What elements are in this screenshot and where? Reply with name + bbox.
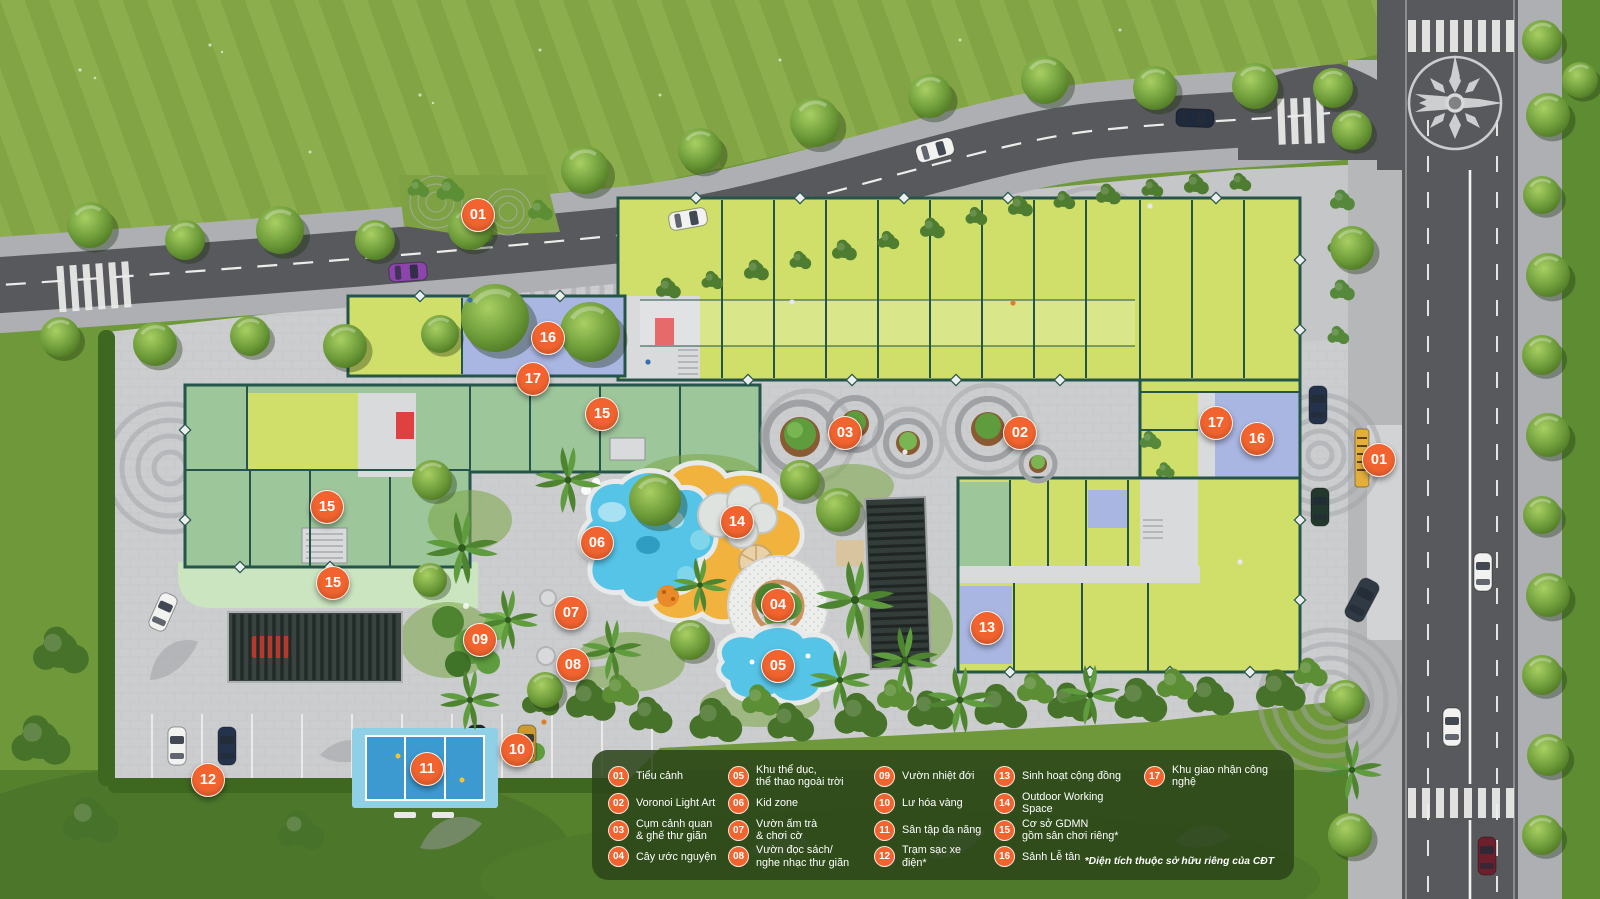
legend-item-11: 11Sân tập đa năng [874, 818, 986, 843]
block-c [958, 478, 1300, 672]
elevator-b [396, 412, 414, 439]
legend-item-13: 13Sinh hoạt cộng đồng [994, 764, 1136, 789]
marker-05[interactable]: 05 [761, 649, 795, 683]
marker-13[interactable]: 13 [970, 611, 1004, 645]
site-master-plan: 0101020304050607080910111213141515151616… [0, 0, 1600, 899]
marker-17[interactable]: 17 [516, 362, 550, 396]
legend-number-badge: 05 [728, 766, 749, 787]
marker-08[interactable]: 08 [556, 648, 590, 682]
legend-item-12: 12Trạm sạc xe điện* [874, 844, 986, 869]
marker-15[interactable]: 15 [316, 566, 350, 600]
legend-label: Voronoi Light Art [636, 797, 715, 809]
legend-number-badge: 17 [1144, 766, 1165, 787]
legend-label: Lư hóa vàng [902, 797, 963, 809]
legend-label: Khu giao nhận công nghệ [1172, 764, 1278, 789]
legend-number-badge: 11 [874, 820, 895, 841]
marker-10[interactable]: 10 [500, 733, 534, 767]
trellis-pavilion [865, 497, 931, 669]
marker-15[interactable]: 15 [585, 397, 619, 431]
legend-label: Vườn nhiệt đới [902, 770, 974, 782]
legend-number-badge: 04 [608, 846, 629, 867]
marker-01[interactable]: 01 [461, 198, 495, 232]
marker-11[interactable]: 11 [410, 752, 444, 786]
legend-label: Tiểu cảnh [636, 770, 683, 782]
legend-label: Sinh hoạt cộng đồng [1022, 770, 1121, 782]
legend-number-badge: 16 [994, 846, 1015, 867]
legend-item-15: 15Cơ sở GDMN gồm sân chơi riêng* [994, 818, 1136, 843]
legend-label: Vườn ấm trà & chơi cờ [756, 818, 817, 843]
legend-number-badge: 12 [874, 846, 895, 867]
legend-panel: 01Tiểu cảnh02Voronoi Light Art03Cụm cảnh… [592, 750, 1294, 880]
legend-label: Trạm sạc xe điện* [902, 844, 986, 869]
marker-04[interactable]: 04 [761, 588, 795, 622]
legend-item-08: 08Vườn đọc sách/ nghe nhạc thư giãn [728, 844, 866, 869]
legend-number-badge: 03 [608, 820, 629, 841]
legend-item-05: 05Khu thể dục, thể thao ngoài trời [728, 764, 866, 789]
legend-number-badge: 08 [728, 846, 749, 867]
marker-16[interactable]: 16 [1240, 422, 1274, 456]
carport-pergola [228, 612, 402, 682]
marker-07[interactable]: 07 [554, 596, 588, 630]
marker-14[interactable]: 14 [720, 505, 754, 539]
legend-label: Kid zone [756, 797, 798, 809]
parked-car-white [168, 727, 186, 765]
marker-06[interactable]: 06 [580, 526, 614, 560]
legend-item-02: 02Voronoi Light Art [608, 791, 720, 816]
legend-number-badge: 13 [994, 766, 1015, 787]
legend-item-17: 17Khu giao nhận công nghệ [1144, 764, 1278, 789]
legend-item-01: 01Tiểu cảnh [608, 764, 720, 789]
marker-03[interactable]: 03 [828, 416, 862, 450]
legend-number-badge: 07 [728, 820, 749, 841]
marker-02[interactable]: 02 [1003, 416, 1037, 450]
legend-item-14: 14Outdoor Working Space [994, 791, 1136, 816]
legend-number-badge: 10 [874, 793, 895, 814]
legend-item-03: 03Cụm cảnh quan & ghế thư giãn [608, 818, 720, 843]
legend-item-07: 07Vườn ấm trà & chơi cờ [728, 818, 866, 843]
legend-label: Khu thể dục, thể thao ngoài trời [756, 764, 844, 789]
marker-01[interactable]: 01 [1362, 443, 1396, 477]
legend-item-09: 09Vườn nhiệt đới [874, 764, 986, 789]
marker-12[interactable]: 12 [191, 763, 225, 797]
legend-label: Outdoor Working Space [1022, 791, 1136, 816]
legend-footnote: *Diện tích thuộc sở hữu riêng của CĐT [1085, 856, 1278, 869]
boulevard-asphalt [1402, 0, 1518, 899]
legend-number-badge: 15 [994, 820, 1015, 841]
marker-17[interactable]: 17 [1199, 406, 1233, 440]
legend-number-badge: 02 [608, 793, 629, 814]
car-purple [388, 262, 427, 283]
legend-number-badge: 09 [874, 766, 895, 787]
legend-item-10: 10Lư hóa vàng [874, 791, 986, 816]
legend-number-badge: 06 [728, 793, 749, 814]
marker-09[interactable]: 09 [463, 623, 497, 657]
legend-label: Cụm cảnh quan & ghế thư giãn [636, 818, 712, 843]
legend-label: Cây ước nguyện [636, 851, 716, 863]
legend-label: Cơ sở GDMN gồm sân chơi riêng* [1022, 818, 1119, 843]
legend-number-badge: 14 [994, 793, 1015, 814]
marker-15[interactable]: 15 [310, 490, 344, 524]
legend-label: Sảnh Lễ tân [1022, 851, 1080, 863]
legend-item-06: 06Kid zone [728, 791, 866, 816]
parked-car-navy [218, 727, 236, 765]
legend-item-04: 04Cây ước nguyện [608, 844, 720, 869]
legend-label: Vườn đọc sách/ nghe nhạc thư giãn [756, 844, 849, 869]
marker-16[interactable]: 16 [531, 321, 565, 355]
legend-number-badge: 01 [608, 766, 629, 787]
legend-label: Sân tập đa năng [902, 824, 981, 836]
